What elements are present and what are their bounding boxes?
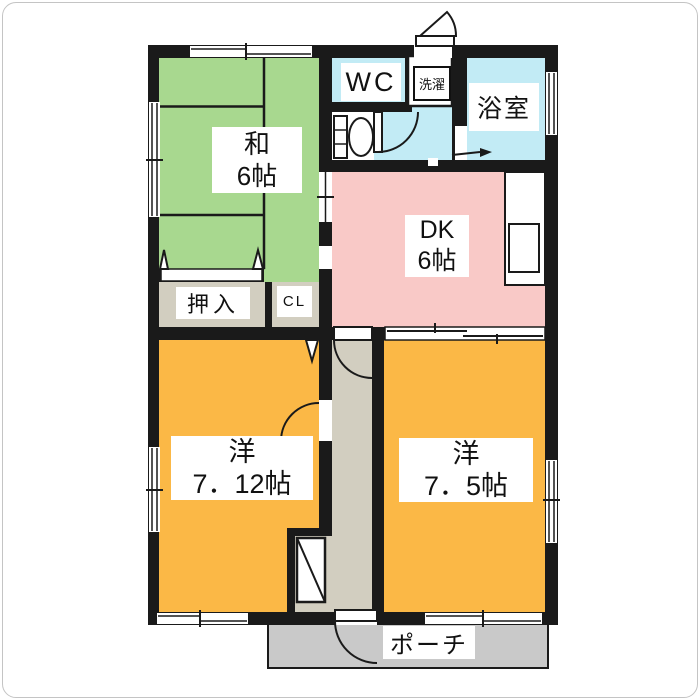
western1-name: 洋 <box>229 436 256 468</box>
dk-size: 6帖 <box>418 246 457 277</box>
toilet-tank-icon <box>334 116 347 158</box>
dk-hall-door-leaf <box>334 327 372 340</box>
western2-size: 7．5帖 <box>424 470 508 502</box>
window-right-bath <box>546 72 557 135</box>
dk-name: DK <box>420 215 455 246</box>
back-door-swing <box>420 12 456 36</box>
washitsu-dk-opening2 <box>319 246 332 269</box>
label-bath: 浴室 <box>469 83 539 131</box>
kitchen-sink-icon <box>509 224 539 272</box>
toilet-bowl-icon <box>349 118 373 156</box>
dk-western2-sliding-door <box>385 327 545 340</box>
room-washitsu-floor-ext <box>264 269 319 282</box>
western1-size: 7．12帖 <box>192 468 291 500</box>
laundry-text: 洗濯 <box>419 74 445 93</box>
washitsu-name: 和 <box>244 128 270 160</box>
oshiire-text: 押入 <box>187 287 239 319</box>
label-western1: 洋 7．12帖 <box>171 436 313 500</box>
entrance-door-leaf <box>335 610 377 621</box>
washroom-door-leaf <box>374 112 382 152</box>
label-closet: CL <box>277 286 312 317</box>
porch-text: ポーチ <box>390 625 468 660</box>
washitsu-size: 6帖 <box>237 160 277 192</box>
label-laundry: 洗濯 <box>413 66 451 101</box>
back-door-leaf <box>416 36 454 46</box>
floorplan-image: 和 6帖 WC 洗濯 浴室 DK 6帖 押入 CL 洋 7．12帖 洋 7．5帖… <box>0 0 700 700</box>
wc-text: WC <box>346 67 397 98</box>
label-washitsu: 和 6帖 <box>212 127 302 193</box>
bath-text: 浴室 <box>477 89 531 125</box>
floorplan-drawing <box>0 0 700 700</box>
washroom-threshold <box>428 158 438 166</box>
genkan-wall-v <box>287 528 295 612</box>
fusuma-rail <box>161 269 262 281</box>
label-porch: ポーチ <box>383 626 475 659</box>
label-dk: DK 6帖 <box>405 215 469 277</box>
label-wc: WC <box>341 63 401 101</box>
western2-name: 洋 <box>453 438 480 470</box>
label-western2: 洋 7．5帖 <box>399 438 533 502</box>
label-oshiire: 押入 <box>176 287 250 319</box>
wc-wall <box>332 102 412 112</box>
closet-text: CL <box>283 293 306 310</box>
western1-door-leaf <box>319 400 332 441</box>
